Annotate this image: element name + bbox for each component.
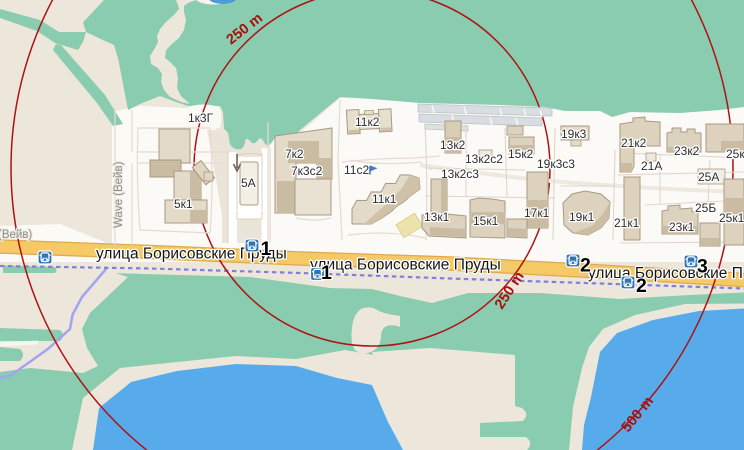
svg-text:улица Борисовские Пруды: улица Борисовские Пруды xyxy=(310,257,501,274)
svg-text:21А: 21А xyxy=(641,159,662,173)
svg-text:3: 3 xyxy=(697,256,708,278)
svg-text:25к1: 25к1 xyxy=(719,211,744,225)
svg-text:15к1: 15к1 xyxy=(473,214,499,228)
svg-text:21к1: 21к1 xyxy=(614,216,640,230)
svg-text:11к2: 11к2 xyxy=(355,115,380,129)
svg-text:улица Борисовские П: улица Борисовские П xyxy=(588,265,743,282)
svg-text:2: 2 xyxy=(580,255,591,277)
svg-text:19к3: 19к3 xyxy=(561,127,587,141)
svg-text:1: 1 xyxy=(321,262,332,284)
svg-text:13к2с2: 13к2с2 xyxy=(465,152,503,166)
svg-text:17к1: 17к1 xyxy=(524,206,550,220)
svg-text:25к: 25к xyxy=(726,147,744,161)
svg-text:23к2: 23к2 xyxy=(674,144,700,158)
svg-text:11с2: 11с2 xyxy=(344,163,369,177)
svg-text:Wave (Вейв): Wave (Вейв) xyxy=(113,161,125,228)
svg-text:13к1: 13к1 xyxy=(424,210,450,224)
svg-text:19к1: 19к1 xyxy=(569,210,595,224)
svg-text:7к3с2: 7к3с2 xyxy=(291,164,323,178)
svg-text:25Б: 25Б xyxy=(695,201,716,215)
svg-text:7к2: 7к2 xyxy=(285,147,304,161)
svg-text:19к3с3: 19к3с3 xyxy=(537,157,575,171)
svg-text:11к1: 11к1 xyxy=(372,192,397,206)
svg-text:21к2: 21к2 xyxy=(621,136,647,150)
svg-text:13к2: 13к2 xyxy=(440,138,466,152)
svg-text:5А: 5А xyxy=(241,176,256,190)
svg-text:25А: 25А xyxy=(698,170,719,184)
svg-text:15к2: 15к2 xyxy=(508,147,534,161)
svg-text:(Вейв): (Вейв) xyxy=(0,229,32,241)
svg-text:23к1: 23к1 xyxy=(669,220,695,234)
svg-text:1: 1 xyxy=(261,238,272,260)
svg-text:5к1: 5к1 xyxy=(174,197,193,211)
svg-text:2: 2 xyxy=(636,275,647,297)
svg-text:1к3Г: 1к3Г xyxy=(188,111,214,125)
